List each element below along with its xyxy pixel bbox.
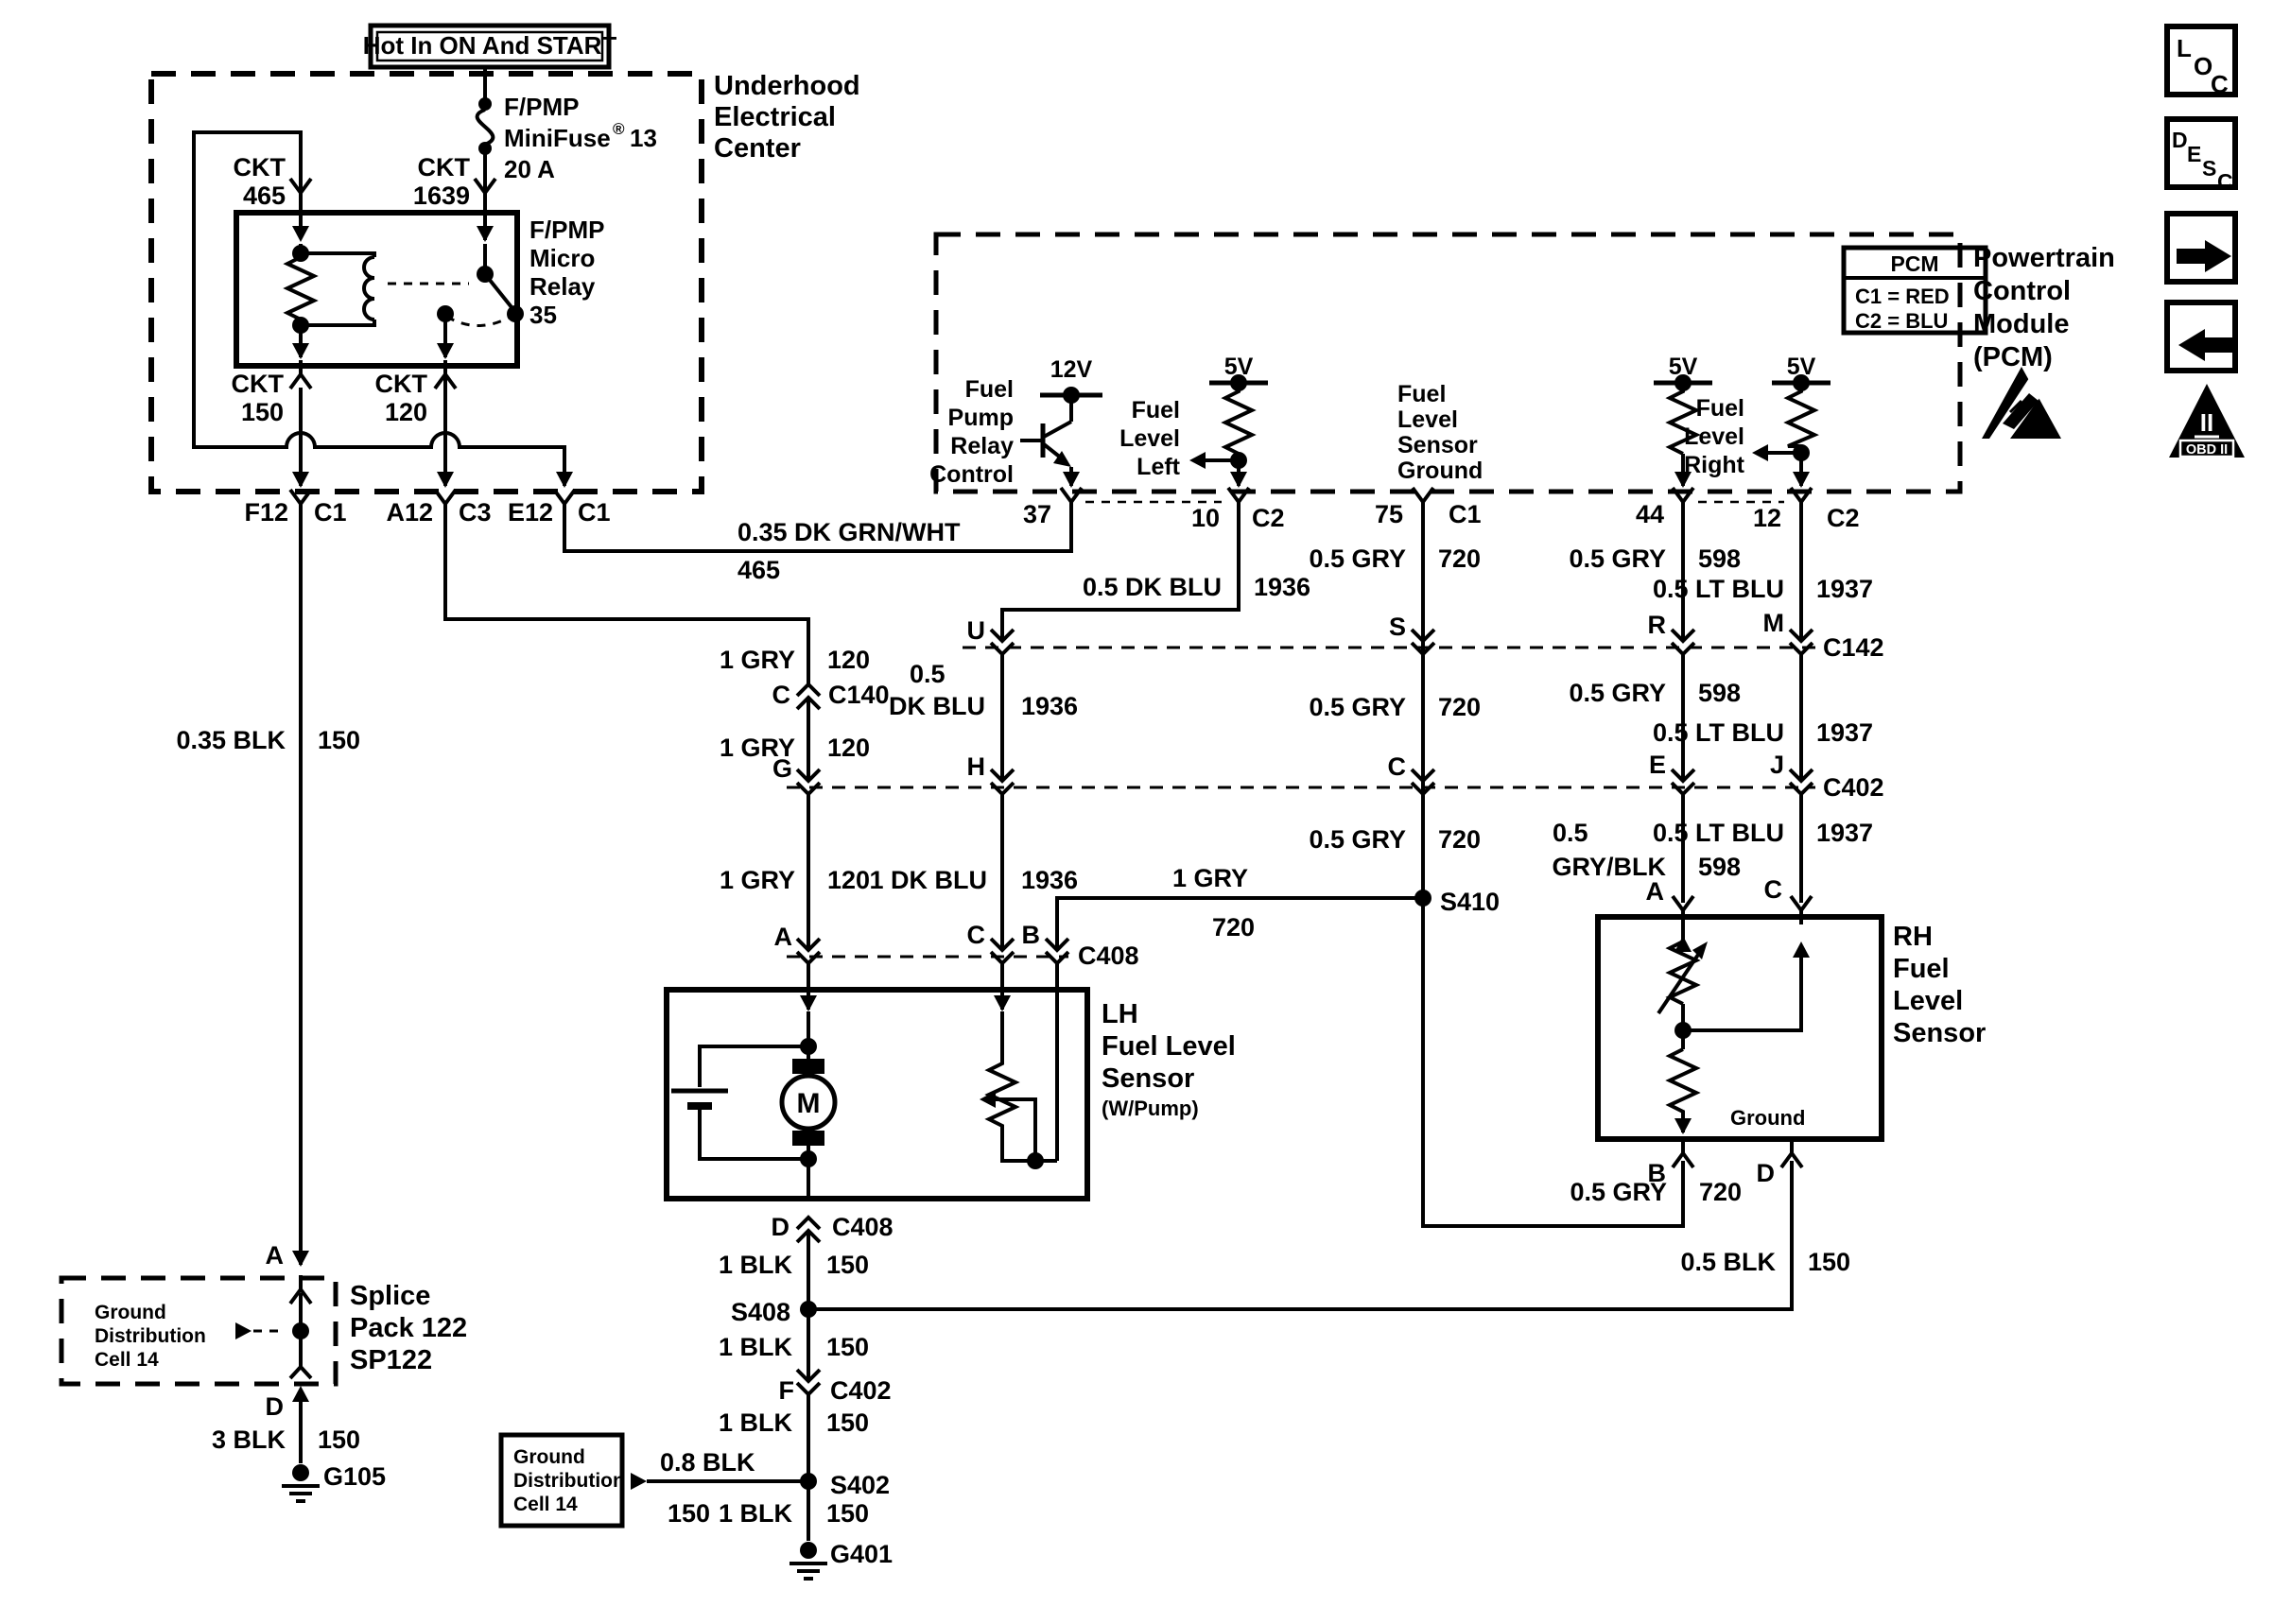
wire-label: 1 BLK — [719, 1499, 793, 1528]
pin-label: C — [1764, 875, 1783, 904]
arrow-right-icon — [2167, 214, 2235, 282]
pin-label: C — [772, 681, 791, 709]
wire-label: 150 — [318, 1425, 360, 1454]
wire-label: 0.5 GRY — [1569, 679, 1666, 707]
connector-label: C402 — [1823, 773, 1884, 802]
svg-text:Electrical: Electrical — [714, 102, 836, 132]
wire-label: 720 — [1438, 693, 1481, 721]
wire-label: 1936 — [1021, 692, 1078, 720]
svg-text:Level: Level — [1397, 406, 1458, 433]
svg-text:MiniFuse: MiniFuse — [504, 124, 611, 152]
obd2-roman: II — [2200, 408, 2213, 437]
svg-text:(W/Pump): (W/Pump) — [1102, 1097, 1199, 1120]
pcm-module: PCM C1 = RED C2 = BLU Powertrain Control… — [929, 234, 2115, 492]
pin-label: G — [772, 754, 792, 783]
pin-label: A — [774, 923, 793, 951]
svg-text:Sensor: Sensor — [1102, 1063, 1194, 1094]
pin-label: 75 — [1375, 500, 1403, 528]
svg-text:Distribution: Distribution — [95, 1325, 206, 1347]
relay-switch-blade — [485, 274, 515, 312]
wiper — [1683, 958, 1801, 1030]
obd2-label: OBD II — [2186, 442, 2228, 458]
wire-label: 0.5 BLK — [1680, 1248, 1776, 1276]
svg-text:Relay: Relay — [950, 433, 1014, 459]
svg-text:Pump: Pump — [948, 405, 1014, 431]
pin-label: B — [1022, 921, 1041, 949]
motor-letter: M — [797, 1088, 821, 1119]
signal-label: Fuel — [965, 376, 1014, 403]
fpmp-micro-relay — [236, 179, 524, 389]
pcm-pin-row: 37 10 C2 75 C1 44 12 C2 — [1023, 488, 1860, 532]
fuse-label: F/PMP — [504, 93, 579, 121]
wire-label: 0.35 BLK — [176, 726, 286, 754]
battery-icon — [671, 1046, 808, 1159]
pin-label: H — [967, 752, 986, 781]
c408-connector-row: A C B C408 — [774, 921, 1139, 970]
icon-letter: S — [2202, 156, 2216, 181]
fuel-pump-motor-icon: M — [782, 1059, 835, 1146]
underhood-electrical-center: Underhood Electrical Center F/PMP MiniFu… — [151, 66, 860, 492]
pin-label: B — [1648, 1159, 1667, 1187]
svg-text:Control: Control — [929, 461, 1014, 488]
wire-label: 1936 — [1021, 866, 1078, 894]
icon-letter: C — [2217, 169, 2233, 194]
wire-label: 720 — [1438, 825, 1481, 854]
wire-label: 0.5 LT BLU — [1653, 575, 1784, 603]
wire-label: 0.8 BLK — [660, 1448, 755, 1477]
icon-letter: C — [2211, 70, 2229, 98]
wire-label: 0.5 — [910, 660, 946, 688]
ckt1639-label: CKT — [418, 153, 471, 181]
fuel-level-right-pullup-12: 5V — [1752, 354, 1831, 488]
wire-label: 1 BLK — [719, 1408, 793, 1437]
wire-label: 120 — [827, 646, 870, 674]
svg-text:Ground: Ground — [95, 1302, 166, 1323]
wire-label: 598 — [1698, 544, 1741, 573]
svg-text:C2 = BLU: C2 = BLU — [1855, 309, 1948, 333]
relay-coil — [364, 257, 374, 320]
pcm-legend-title: PCM — [1890, 251, 1938, 276]
level-sender-resistor — [989, 1011, 1057, 1161]
svg-text:13: 13 — [630, 124, 657, 152]
pin-label: U — [967, 616, 986, 645]
svg-text:Cell 14: Cell 14 — [95, 1349, 159, 1371]
rh-sensor-title: RH — [1893, 922, 1933, 952]
relay-label: F/PMP — [529, 216, 604, 244]
wire-label: 120 — [827, 866, 870, 894]
wire-label: 1937 — [1816, 718, 1873, 747]
wire-label: 150 — [826, 1333, 869, 1361]
wire-label: 1 DK BLU — [869, 866, 987, 894]
pin-label: C2 — [1252, 504, 1285, 532]
svg-text:Left: Left — [1136, 454, 1181, 480]
wire-label: 0.5 GRY — [1309, 693, 1406, 721]
pin-label: D — [1757, 1159, 1776, 1187]
wire-label: 150 — [826, 1408, 869, 1437]
wire-label: 720 — [1699, 1178, 1742, 1206]
wire-label: 1 GRY — [1172, 864, 1248, 892]
ground-icon-g105 — [282, 1464, 320, 1501]
svg-text:Right: Right — [1684, 452, 1745, 478]
svg-text:C1 = RED: C1 = RED — [1855, 285, 1950, 308]
pin-label: A — [1646, 877, 1665, 906]
icon-letter: L — [2177, 34, 2192, 62]
splice-pack-122: A Ground Distribution Cell 14 D 3 BLK 15… — [61, 1241, 386, 1501]
svg-text:Level: Level — [1684, 423, 1744, 450]
svg-text:Sensor: Sensor — [1397, 432, 1478, 458]
pin-label: F — [779, 1376, 795, 1405]
svg-text:120: 120 — [385, 398, 427, 426]
obd2-icon: II OBD II — [2169, 384, 2245, 458]
svg-text:Level: Level — [1893, 986, 1963, 1016]
pin-label: D — [266, 1392, 285, 1421]
pin-label: 10 — [1191, 504, 1220, 532]
pin-label: M — [1763, 609, 1785, 637]
lh-sensor-title: LH — [1102, 999, 1138, 1029]
wire-label: 720 — [1212, 913, 1255, 942]
icon-letter: D — [2172, 128, 2188, 152]
connector-label: C408 — [832, 1213, 894, 1241]
wire-label: 1 GRY — [720, 646, 795, 674]
svg-text:465: 465 — [243, 181, 286, 210]
pcm-title: Powertrain — [1973, 243, 2115, 273]
ckt150-label: CKT — [232, 370, 285, 398]
wire-label: 0.5 LT BLU — [1653, 819, 1784, 847]
splice-label: S410 — [1440, 888, 1500, 916]
svg-text:Fuel: Fuel — [1893, 954, 1950, 984]
arrow-left-icon — [2167, 302, 2235, 371]
wire-label: 598 — [1698, 679, 1741, 707]
connector-label: C140 — [828, 681, 890, 709]
esd-warning-icon — [1982, 367, 2061, 439]
pin-label: C3 — [459, 498, 492, 527]
svg-text:150: 150 — [241, 398, 284, 426]
pin-label: F12 — [244, 498, 288, 527]
wiring-diagram: Hot In ON And START Underhood Electrical… — [0, 0, 2273, 1624]
wire-label: 150 — [826, 1499, 869, 1528]
voltage-label: 12V — [1050, 356, 1093, 383]
svg-text:Ground: Ground — [513, 1446, 585, 1468]
fuel-pump-relay-control-driver: 12V — [1020, 356, 1102, 488]
signal-label: Fuel — [1696, 395, 1744, 422]
c402-connector-row: G H C E J C402 — [772, 751, 1884, 802]
pin-label: R — [1648, 611, 1667, 639]
svg-text:Module: Module — [1973, 309, 2070, 339]
svg-text:(PCM): (PCM) — [1973, 342, 2053, 372]
pin-label: 12 — [1753, 504, 1781, 532]
wire-label: 0.5 GRY — [1309, 825, 1406, 854]
hot-feed-label: Hot In ON And START — [363, 31, 617, 60]
wire-label: 1936 — [1254, 573, 1310, 601]
ckt465-label: CKT — [234, 153, 286, 181]
pin-label: E — [1649, 751, 1666, 779]
pin-label: D — [772, 1213, 790, 1241]
wire-label: 150 — [826, 1251, 869, 1279]
wire-label: 0.5 LT BLU — [1653, 718, 1784, 747]
rh-fuel-level-sensor: A C Ground B D — [1598, 875, 1882, 1187]
wire-label: 1937 — [1816, 575, 1873, 603]
svg-text:Relay: Relay — [529, 272, 596, 301]
splice-label: S402 — [830, 1471, 890, 1499]
pin-label: C1 — [314, 498, 347, 527]
splice-label: S408 — [731, 1298, 790, 1326]
pin-label: C1 — [578, 498, 611, 527]
splice-pack-title: Splice — [350, 1281, 430, 1311]
pin-label: C — [967, 921, 986, 949]
wire-label: 120 — [827, 734, 870, 762]
registered-mark: ® — [613, 120, 625, 138]
wire-label: 3 BLK — [212, 1425, 286, 1454]
desc-icon: D E S C — [2167, 119, 2235, 194]
pin-label: S — [1389, 613, 1406, 641]
svg-text:Fuel Level: Fuel Level — [1102, 1031, 1236, 1062]
fpmp-minifuse-icon — [477, 66, 494, 193]
signal-label: Fuel — [1397, 381, 1446, 407]
svg-text:Cell 14: Cell 14 — [513, 1494, 578, 1515]
connector-label: C142 — [1823, 633, 1884, 662]
wire-label: 720 — [1438, 544, 1481, 573]
wire-label: 0.5 — [1553, 819, 1588, 847]
svg-text:Ground: Ground — [1397, 458, 1483, 484]
pin-label: 37 — [1023, 500, 1051, 528]
hot-in-on-start-box: Hot In ON And START — [363, 26, 617, 67]
wire-label: 0.5 GRY — [1569, 544, 1666, 573]
svg-text:Center: Center — [714, 133, 801, 164]
signal-label: Fuel — [1132, 397, 1180, 423]
wire-label: 0.35 DK GRN/WHT — [737, 518, 961, 546]
wire-label: 0.5 GRY — [1309, 544, 1406, 573]
svg-text:Control: Control — [1973, 276, 2071, 306]
relay-coil-resistor — [287, 257, 314, 320]
wire-label: 0.5 DK BLU — [1083, 573, 1222, 601]
wire-label: 150 — [1808, 1248, 1850, 1276]
svg-text:Level: Level — [1119, 425, 1180, 452]
wire-label: 150 — [668, 1499, 710, 1528]
ckt120-label: CKT — [375, 370, 428, 398]
ground-label: G401 — [830, 1540, 893, 1568]
loc-icon: L O C — [2167, 26, 2235, 98]
pin-label: A12 — [386, 498, 433, 527]
wire-label: 1 BLK — [719, 1251, 793, 1279]
ground-label: G105 — [323, 1462, 386, 1491]
svg-text:Micro: Micro — [529, 244, 595, 272]
underhood-title: Underhood — [714, 71, 860, 101]
pin-label: J — [1770, 751, 1784, 779]
wire-label: DK BLU — [889, 692, 985, 720]
icon-letter: E — [2187, 142, 2201, 166]
wire-label: 150 — [318, 726, 360, 754]
pin-label: C1 — [1449, 500, 1482, 528]
ground-label: Ground — [1730, 1106, 1805, 1130]
svg-text:1639: 1639 — [413, 181, 470, 210]
fuel-level-left-pullup: 5V — [1189, 354, 1268, 488]
lh-fuel-level-sensor: M — [667, 964, 1087, 1199]
connector-label: C402 — [830, 1376, 892, 1405]
wiring-diagram-page: Hot In ON And START Underhood Electrical… — [0, 0, 2273, 1624]
wire-label: 1 GRY — [720, 866, 795, 894]
svg-text:20 A: 20 A — [504, 155, 555, 183]
wire-label: 465 — [737, 556, 780, 584]
pin-label: 44 — [1636, 500, 1664, 528]
pin-label: A — [266, 1241, 285, 1270]
wire-label: 1937 — [1816, 819, 1873, 847]
pin-label: C — [1388, 752, 1407, 781]
wire-label: 598 — [1698, 853, 1741, 881]
wire-label: 1 BLK — [719, 1333, 793, 1361]
svg-text:Pack 122: Pack 122 — [350, 1313, 467, 1343]
pcm-legend-box: PCM C1 = RED C2 = BLU — [1844, 248, 1986, 333]
ground-icon-g401 — [789, 1542, 827, 1579]
svg-text:Distribution: Distribution — [513, 1470, 625, 1492]
pin-label: C2 — [1827, 504, 1860, 532]
svg-text:Sensor: Sensor — [1893, 1018, 1986, 1048]
svg-text:35: 35 — [529, 301, 557, 329]
svg-text:SP122: SP122 — [350, 1345, 432, 1375]
connector-label: C408 — [1078, 942, 1139, 970]
pin-label: E12 — [508, 498, 553, 527]
